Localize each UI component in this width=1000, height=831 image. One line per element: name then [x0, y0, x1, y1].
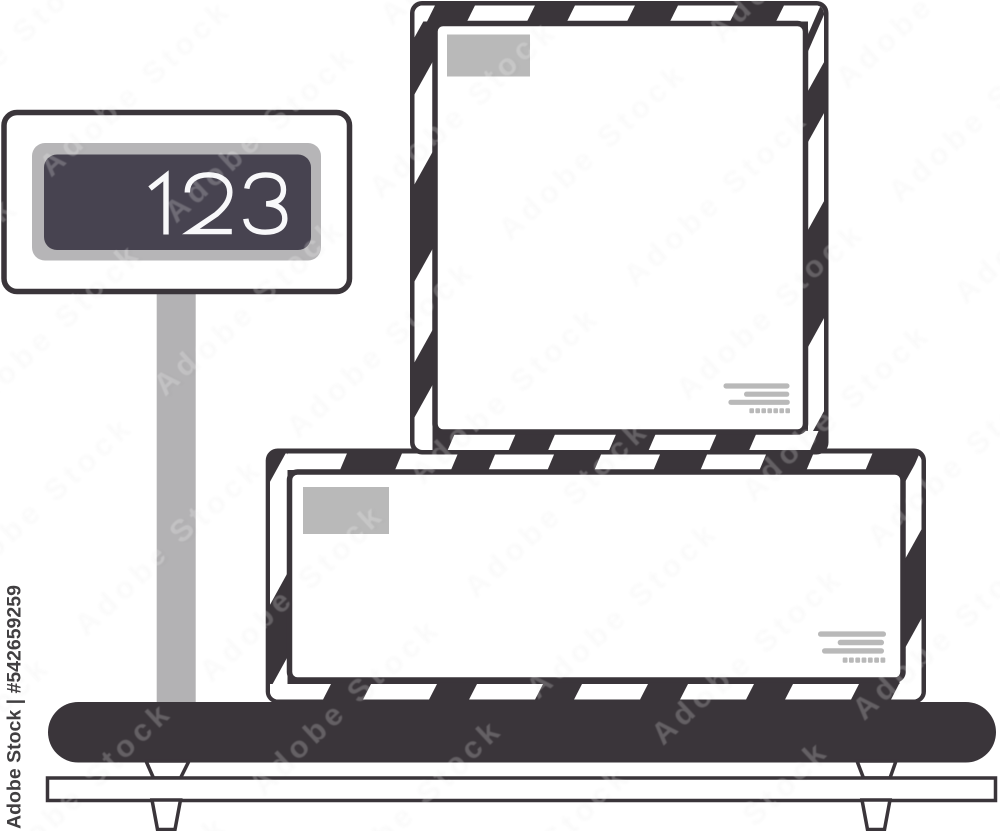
svg-text:Adobe Stock | #542659259: Adobe Stock | #542659259: [4, 585, 26, 829]
